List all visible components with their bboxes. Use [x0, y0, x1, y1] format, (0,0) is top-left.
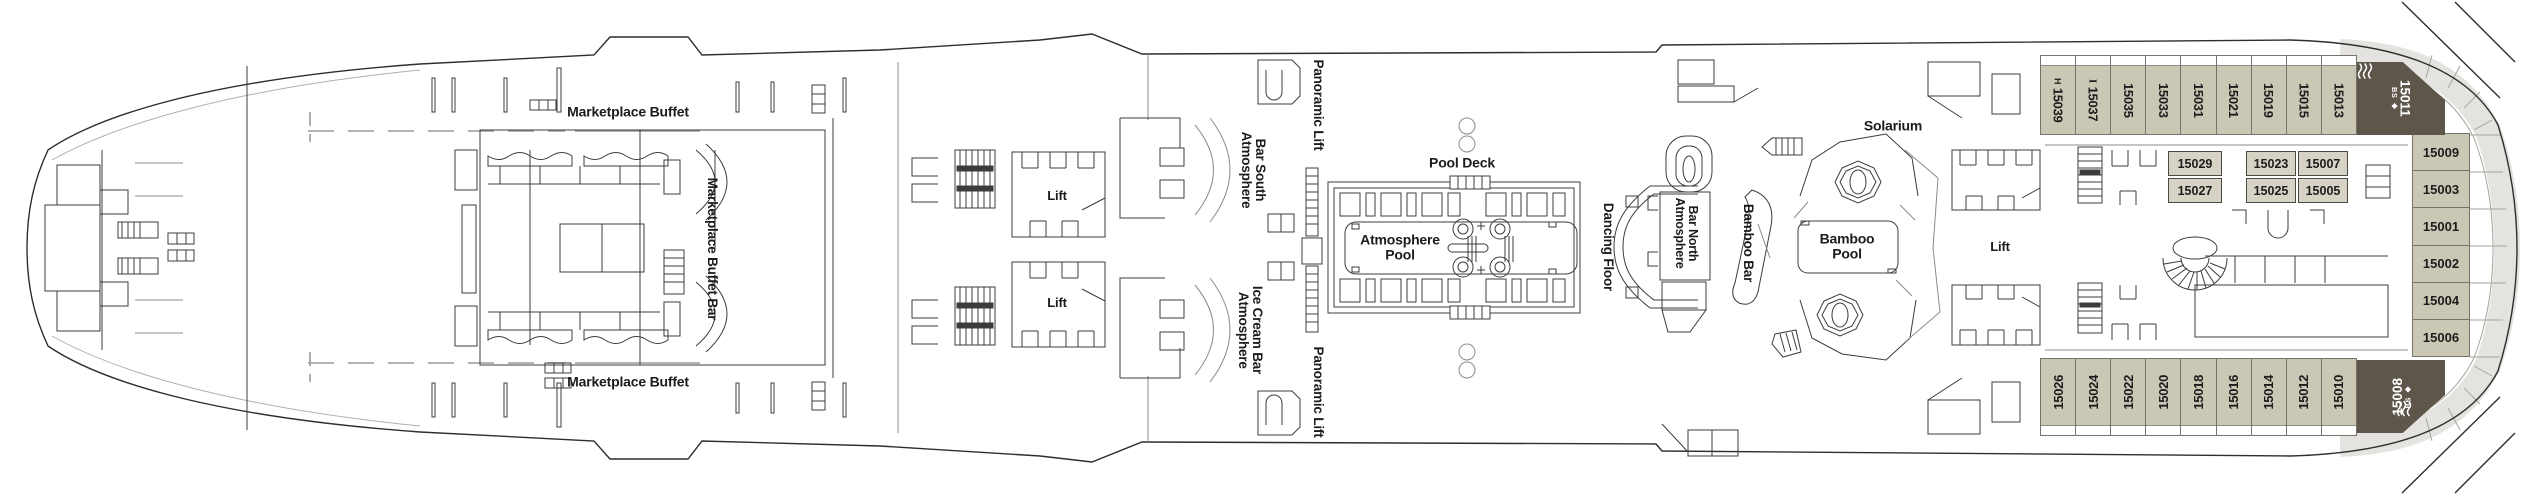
- cabin-cell: 15026: [2041, 359, 2075, 435]
- deck-plan: Marketplace Buffet Marketplace Buffet Ma…: [0, 0, 2525, 495]
- cabin-cell: I 15037: [2075, 56, 2110, 134]
- label-panoramic-lift-top: Panoramic Lift: [1311, 60, 1325, 151]
- label-marketplace-buffet-bar: Marketplace Buffet Bar: [705, 178, 719, 321]
- cabin-room: H 15039: [2041, 66, 2075, 134]
- accessible-cabin-icon: H: [2053, 78, 2063, 85]
- cabin-room: 15035: [2111, 66, 2145, 134]
- label-lift-aft: Lift: [1990, 240, 2009, 254]
- cabin-number: 15024: [2086, 375, 2101, 410]
- label-atmosphere-bar-south: Atmosphere Bar South: [1239, 132, 1267, 209]
- cabin-cell: H 15039: [2041, 56, 2075, 134]
- label-atmosphere-ice-cream-bar: Atmosphere Ice Cream Bar: [1236, 286, 1264, 374]
- cabin-cell: 15001: [2413, 207, 2469, 244]
- cabin-number: 15022: [2121, 375, 2136, 410]
- cabin-number: 15012: [2296, 375, 2311, 410]
- cabin-room: 15013: [2322, 66, 2356, 134]
- label-lift-forward-bottom: Lift: [1047, 296, 1066, 310]
- cabin-number: 15011: [2398, 80, 2412, 117]
- balcony-strip: [2076, 56, 2110, 66]
- label-bamboo-bar: Bamboo Bar: [1741, 204, 1755, 282]
- cabin-cell: 15016: [2216, 359, 2251, 435]
- cabin-room: 15033: [2146, 66, 2180, 134]
- label-atmosphere-bar-north: Atmosphere Bar North: [1673, 198, 1699, 269]
- cabin-cell: 15012: [2286, 359, 2321, 435]
- hull-inner-lines: [52, 70, 420, 426]
- cabin-cell: 15004: [2413, 282, 2469, 319]
- cabin-number: 15031: [2191, 83, 2206, 118]
- cabin-number: 15015: [2296, 83, 2311, 118]
- cabin-number: 15020: [2156, 375, 2171, 410]
- midship-stairs-lifts: [912, 54, 1148, 442]
- balcony-strip: [2111, 425, 2145, 435]
- balcony-strip: [2041, 425, 2075, 435]
- cabin-room: 15010: [2322, 359, 2356, 425]
- label-atmosphere-pool: Atmosphere Pool: [1360, 232, 1440, 261]
- connecting-cabin-icon: I: [2087, 79, 2099, 83]
- cabin-cell: 15007: [2298, 151, 2348, 176]
- balcony-strip: [2287, 56, 2321, 66]
- interior-cabin-pair: 1502915027: [2168, 151, 2222, 203]
- cabin-cell: 15023: [2246, 151, 2296, 176]
- balcony-strip: [2322, 56, 2356, 66]
- balcony-strip: [2181, 56, 2215, 66]
- cabin-cell: 15033: [2145, 56, 2180, 134]
- cabin-cell: 15021: [2216, 56, 2251, 134]
- label-marketplace-buffet-top: Marketplace Buffet: [567, 105, 689, 120]
- cabin-cell: 15005: [2298, 178, 2348, 203]
- cabin-cell: 15006: [2413, 319, 2469, 356]
- cabin-cell: 15015: [2286, 56, 2321, 134]
- balcony-strip: [2322, 425, 2356, 435]
- cabin-number: 15033: [2156, 83, 2171, 118]
- cabin-room: 15016: [2217, 359, 2251, 425]
- cabin-room: 15014: [2252, 359, 2286, 425]
- cabin-number: 15014: [2261, 375, 2276, 410]
- label-marketplace-buffet-bottom: Marketplace Buffet: [567, 375, 689, 390]
- cabin-room: 15018: [2181, 359, 2215, 425]
- cabin-number: 15026: [2051, 375, 2066, 410]
- cabin-number: I 15037: [2086, 79, 2101, 121]
- cabin-number: 15010: [2331, 375, 2346, 410]
- cabin-row-top: H 15039I 1503715035150331503115021150191…: [2040, 55, 2357, 135]
- cabin-number: 15021: [2226, 83, 2241, 118]
- cabin-number: 15019: [2261, 83, 2276, 118]
- cabin-number: 15013: [2331, 83, 2346, 118]
- cabin-room: I 15037: [2076, 66, 2110, 134]
- balcony-strip: [2181, 425, 2215, 435]
- suite-badge: BS ◆: [2391, 78, 2399, 119]
- cabin-column-stern: 150091500315001150021500415006: [2412, 133, 2470, 357]
- waist-bars-panoramic-lifts: [1120, 60, 1322, 435]
- cabin-number: 15018: [2191, 375, 2206, 410]
- balcony-strip: [2076, 425, 2110, 435]
- balcony-strip: [2146, 56, 2180, 66]
- label-bamboo-pool: Bamboo Pool: [1820, 231, 1875, 260]
- label-dancing-floor: Dancing Floor: [1601, 203, 1615, 291]
- cabin-room: 15015: [2287, 66, 2321, 134]
- cabin-cell: 15014: [2251, 359, 2286, 435]
- cabin-cell: 15031: [2180, 56, 2215, 134]
- cabin-room: 15024: [2076, 359, 2110, 425]
- cabin-cell: 15010: [2321, 359, 2356, 435]
- cabin-cell: 15035: [2110, 56, 2145, 134]
- cabin-cell: 15027: [2168, 178, 2222, 203]
- cabin-cell: 15020: [2145, 359, 2180, 435]
- balcony-strip: [2287, 425, 2321, 435]
- label-lift-forward-top: Lift: [1047, 189, 1066, 203]
- label-solarium: Solarium: [1864, 119, 1922, 134]
- interior-cabin-quad: 15023150071502515005: [2246, 151, 2348, 203]
- cabin-cell: 15013: [2321, 56, 2356, 134]
- forward-lift-bank: [1012, 152, 1105, 347]
- cabin-cell: 15002: [2413, 245, 2469, 282]
- balcony-strip: [2217, 56, 2251, 66]
- balcony-strip: [2111, 56, 2145, 66]
- cabin-number: 15016: [2226, 375, 2241, 410]
- cabin-cell: 15025: [2246, 178, 2296, 203]
- cabin-room: 15012: [2287, 359, 2321, 425]
- cabin-number: 15035: [2121, 83, 2136, 118]
- cabin-room: 15026: [2041, 359, 2075, 425]
- waves-icon: [2396, 400, 2412, 416]
- balcony-strip: [2217, 425, 2251, 435]
- balcony-strip: [2252, 425, 2286, 435]
- balcony-strip: [2041, 56, 2075, 66]
- cabin-room: 15031: [2181, 66, 2215, 134]
- cabin-cell: 15019: [2251, 56, 2286, 134]
- cabin-cell: 15003: [2413, 170, 2469, 207]
- cabin-room: 15022: [2111, 359, 2145, 425]
- cabin-row-bottom: 1502615024150221502015018150161501415012…: [2040, 358, 2357, 436]
- cabin-cell: 15029: [2168, 151, 2222, 176]
- cabin-room: 15021: [2217, 66, 2251, 134]
- label-pool-deck: Pool Deck: [1429, 156, 1495, 171]
- waves-icon: [2357, 63, 2373, 79]
- cabin-cell: 15009: [2413, 134, 2469, 170]
- cabin-room: 15020: [2146, 359, 2180, 425]
- cabin-room: 15019: [2252, 66, 2286, 134]
- cabin-cell: 15018: [2180, 359, 2215, 435]
- label-panoramic-lift-bottom: Panoramic Lift: [1311, 347, 1325, 438]
- cabin-number: H 15039: [2051, 78, 2066, 122]
- balcony-strip: [2252, 56, 2286, 66]
- cabin-cell: 15024: [2075, 359, 2110, 435]
- balcony-strip: [2146, 425, 2180, 435]
- cabin-cell: 15022: [2110, 359, 2145, 435]
